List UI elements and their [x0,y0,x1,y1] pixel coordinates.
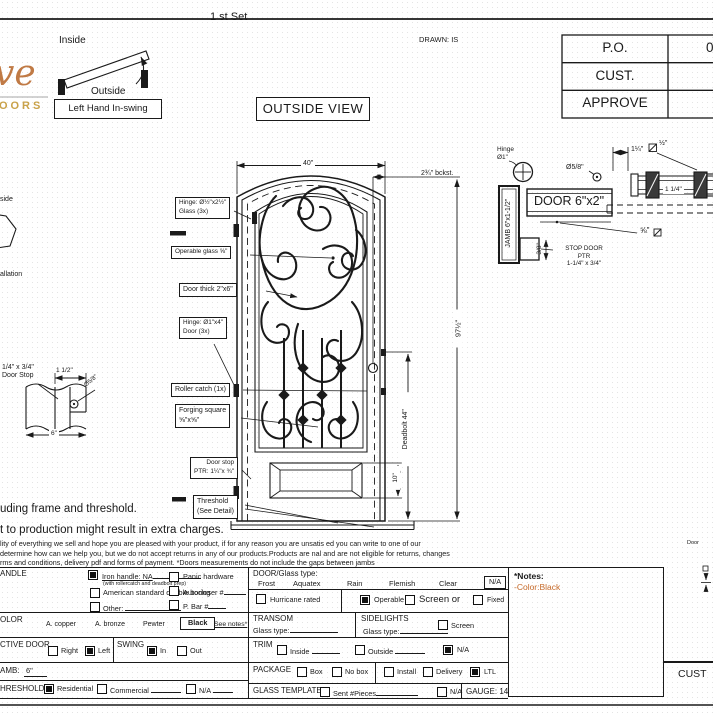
autocloser-text: Autocloser # [183,588,224,597]
glass-option-rain[interactable]: Rain [347,579,362,588]
threshold-section-label: HRESHOLD [0,684,44,694]
checkbox-autocloser[interactable] [169,586,179,596]
checkbox-package-ltl[interactable] [470,667,480,677]
p-bar-text: P. Bar # [183,602,208,611]
glass-type-section-label: DOOR/Glass type: [253,569,318,578]
doorstop-detail-label: 1/4" x 3/4" Door Stop [2,364,34,381]
jamb-hinge-line: Hinge [497,146,514,154]
panic-hardware-label: Panic hardware [183,573,234,582]
callout-line: Door (3x) [183,328,223,337]
checkbox-threshold-residential[interactable] [44,684,54,694]
swing-inside-label: Inside [59,35,86,47]
color-option-copper[interactable]: A. copper [46,621,76,629]
dim-panel-height: 10" [392,466,400,490]
checkbox-swing-out[interactable] [177,646,187,656]
checkbox-package-box[interactable] [297,667,307,677]
color-see-notes[interactable]: See notes* [214,621,247,629]
color-option-bronze[interactable]: A. bronze [95,621,125,629]
dim-door-width: 40" [301,160,315,168]
callout-hinge-door: Hinge: Ø1"x4" Door (3x) [179,317,227,339]
checkbox-american-boring[interactable] [90,588,100,598]
threshold-commercial-text: Commercial [110,686,149,695]
p-bar-label: P. Bar # [183,601,226,612]
callout-line: Forging square [179,406,226,416]
callout-hinge-glass: Hinge: Ø½"x2½" Glass (3x) [175,197,230,219]
template-sent-text: Sent #Pieces [333,689,376,698]
glass-dim-114b: 1 1/4" [663,186,684,194]
customer-signature-label: CUST [678,668,707,681]
blank-line[interactable] [208,601,226,609]
approve-row-label: APPROVE [562,95,668,111]
stop-door-line: STOP DOOR [552,245,616,253]
checkbox-iron-handle[interactable] [88,570,98,580]
package-install-label: Install [397,668,416,677]
blank-line[interactable] [213,685,233,693]
trim-outside-text: Outside [368,647,393,656]
blank-line[interactable] [312,646,340,654]
gauge-label: GAUGE: 14 [466,687,508,697]
callout-line: (See Detail) [197,507,234,517]
blank-line[interactable] [151,685,181,693]
hurricane-label: Hurricane rated [270,596,320,605]
callout-line: Glass (3x) [179,208,226,217]
jamb-hinge-line: Ø1" [497,154,514,162]
set-label: 1 st Set [210,11,247,24]
callout-door-thickness: Door thick 2"x6" [179,283,237,297]
logo-word: DOORS [0,100,43,113]
checkbox-active-left[interactable] [85,646,95,656]
package-box-label: Box [310,668,323,677]
form-border [0,698,508,699]
doorstop-line: Door Stop [2,372,34,380]
sidelights-glass-type: Glass type: [363,626,448,637]
outside-view-title: OUTSIDE VIEW [256,97,370,121]
jamb-value[interactable]: 6" [24,666,47,677]
color-selected-black[interactable]: Black [180,617,215,630]
stop-door-line: 1-1/4" x 3/4" [552,260,616,268]
callout-line: Hinge: Ø1"x4" [183,319,223,328]
trim-section-label: TRIM [253,640,273,650]
doorstop-dim-6: 6" [49,430,59,438]
swing-out-label: Out [190,647,202,656]
glass-option-na-selected[interactable]: N/A [484,576,506,589]
callout-line: Threshold [197,497,234,507]
jamb-section-label: AMB: [0,666,20,676]
disclaimer-small-2: determine how can we help you, but we do… [0,550,450,559]
blank-line[interactable] [395,646,425,654]
notes-body: -Color:Black [514,582,560,592]
autocloser-label: Autocloser # [183,587,246,598]
glass-f58: ⅝" [640,226,650,236]
callout-line: Door thick 2"x6" [183,285,233,295]
screen-or-label: Screen or [419,594,460,605]
transom-section-label: TRANSOM [253,614,293,624]
handle-section-label: ANDLE [0,569,27,579]
cust-row-label: CUST. [562,68,668,84]
blank-line[interactable] [290,625,338,633]
po-row-label: P.O. [562,40,668,56]
callout-line: Hinge: Ø½"x2½" [179,199,226,208]
active-left-label: Left [98,647,110,656]
color-section-label: OLOR [0,615,23,625]
other-handle-text: Other: [103,604,123,613]
sidelights-section-label: SIDELIGHTS [361,614,409,624]
swing-caption: Left Hand In-swing [54,99,162,119]
threshold-residential-label: Residential [57,685,93,694]
dim-deadbolt-height: Deadbolt 44" [402,392,410,466]
transom-glass-text: Glass type: [253,626,290,635]
callout-line: Door stop [194,459,234,468]
checkbox-operable[interactable] [360,595,370,605]
partial-installation-text: allation [0,271,22,279]
package-nobox-label: No box [345,668,368,677]
form-border [0,680,248,681]
checkbox-trim-na[interactable] [443,645,453,655]
callout-line: PTR: 1¼"x ¾" [194,468,234,477]
callout-door-stop: Door stop PTR: 1¼"x ¾" [190,457,238,479]
glass-option-flemish[interactable]: Flemish [389,579,415,588]
threshold-commercial-label: Commercial [110,685,181,696]
form-border [341,589,342,612]
checkbox-other-handle[interactable] [90,602,100,612]
form-border [0,662,508,663]
checkbox-package-delivery[interactable] [423,667,433,677]
trim-na-label: N/A [457,646,469,655]
glass-option-clear[interactable]: Clear [439,579,457,588]
form-border [248,589,508,590]
drawing-sheet: ve DOORS Inside Outside Left Hand In-swi… [0,0,713,713]
doorstop-dia: Ø5/8" [83,374,99,389]
door-note-fragment: Door [687,540,699,547]
jamb-door-size: DOOR 6"x2" [534,194,604,209]
sidelights-screen-label: Screen [451,622,474,631]
fixed-label: Fixed [487,597,504,605]
po-value: 0 [706,40,713,56]
swing-section-label: SWING [117,640,144,650]
checkbox-template-na[interactable] [437,687,447,697]
checkbox-panic-hardware[interactable] [169,572,179,582]
checkbox-trim-outside[interactable] [355,645,365,655]
form-border [375,662,376,683]
callout-line: Roller catch (1x) [175,385,226,395]
active-door-section-label: CTIVE DOOR [0,640,50,650]
operable-label: Operable [374,596,404,605]
callout-operable-glass: Operable glass ⅝" [171,246,231,259]
jamb-stop-dim: 3/8" [536,237,544,261]
blank-line[interactable] [224,587,246,595]
form-border [248,683,508,684]
checkbox-trim-inside[interactable] [277,645,287,655]
notes-title: *Notes: [514,571,544,581]
checkbox-package-install[interactable] [384,667,394,677]
package-ltl-label: LTL [484,668,496,677]
form-border [0,637,508,638]
swing-in-label: In [160,647,166,656]
doorstop-line: 1/4" x 3/4" [2,364,34,372]
swing-outside-label: Outside [91,86,125,98]
checkbox-package-nobox[interactable] [332,667,342,677]
form-border [248,567,249,698]
callout-roller-catch: Roller catch (1x) [171,383,230,397]
glass-sq-half: ½" [659,140,667,148]
checkbox-screen-or[interactable] [405,595,415,605]
checkbox-threshold-commercial[interactable] [97,684,107,694]
disclaimer-line-1: uding frame and threshold. [0,503,137,517]
jamb-hinge-label: Hinge Ø1" [497,146,514,162]
logo-script: ve [0,52,36,95]
glass-template-section-label: GLASS TEMPLATE [253,686,322,695]
template-sent-label: Sent #Pieces [333,688,418,699]
package-section-label: PACKAGE [253,665,291,675]
form-border [113,637,114,662]
transom-glass-type: Glass type: [253,625,338,636]
checkbox-swing-in[interactable] [147,646,157,656]
checkbox-hurricane[interactable] [256,594,266,604]
callout-forging-square: Forging square ⅝"x⅝" [175,404,230,428]
checkbox-p-bar[interactable] [169,600,179,610]
stop-door-line: PTR [552,253,616,261]
trim-outside-label: Outside [368,646,425,657]
callout-line: ⅝"x⅝" [179,416,226,426]
callout-line: Operable glass ⅝" [175,248,227,257]
callout-threshold: Threshold (See Detail) [193,495,238,519]
checkbox-fixed[interactable] [473,595,483,605]
doorstop-dim-112: 1 1/2" [56,367,73,375]
form-border [355,612,356,637]
checkbox-sidelights-screen[interactable] [438,620,448,630]
blank-line[interactable] [376,688,418,696]
trim-inside-label: Inside [290,646,340,657]
glass-dim-114: 1¼" [631,146,643,154]
trim-inside-text: Inside [290,647,309,656]
glass-option-aquatex[interactable]: Aquatex [293,579,321,588]
iron-handle-text: Iron handle: NA [102,572,153,581]
drawn-by-label: DRAWN: IS [419,35,458,44]
jamb-size-label: JAMB 6"x1-1/2" [505,183,513,263]
package-delivery-label: Delivery [436,668,462,677]
dim-backset: 2¾" bckst. [421,170,453,178]
partial-outside-text: side [0,196,13,204]
disclaimer-small-1: lity of everything we sell and hope you … [0,540,421,549]
threshold-na-label: N/A [199,685,233,696]
checkbox-template-sent[interactable] [320,687,330,697]
template-na-label: N/A [450,688,462,697]
jamb-glass-dia-label: Ø5/8" [566,164,584,172]
checkbox-active-right[interactable] [48,646,58,656]
dim-door-height: 97½" [454,310,463,348]
glass-option-frost[interactable]: Frost [258,579,275,588]
checkbox-threshold-na[interactable] [186,684,196,694]
jamb-stop-door-label: STOP DOOR PTR 1-1/4" x 3/4" [552,245,616,268]
active-right-label: Right [61,647,78,656]
disclaimer-line-2: t to production might result in extra ch… [0,524,224,538]
threshold-na-text: N/A [199,686,211,695]
color-option-pewter[interactable]: Pewter [143,621,165,629]
sidelights-glass-text: Glass type: [363,627,400,636]
